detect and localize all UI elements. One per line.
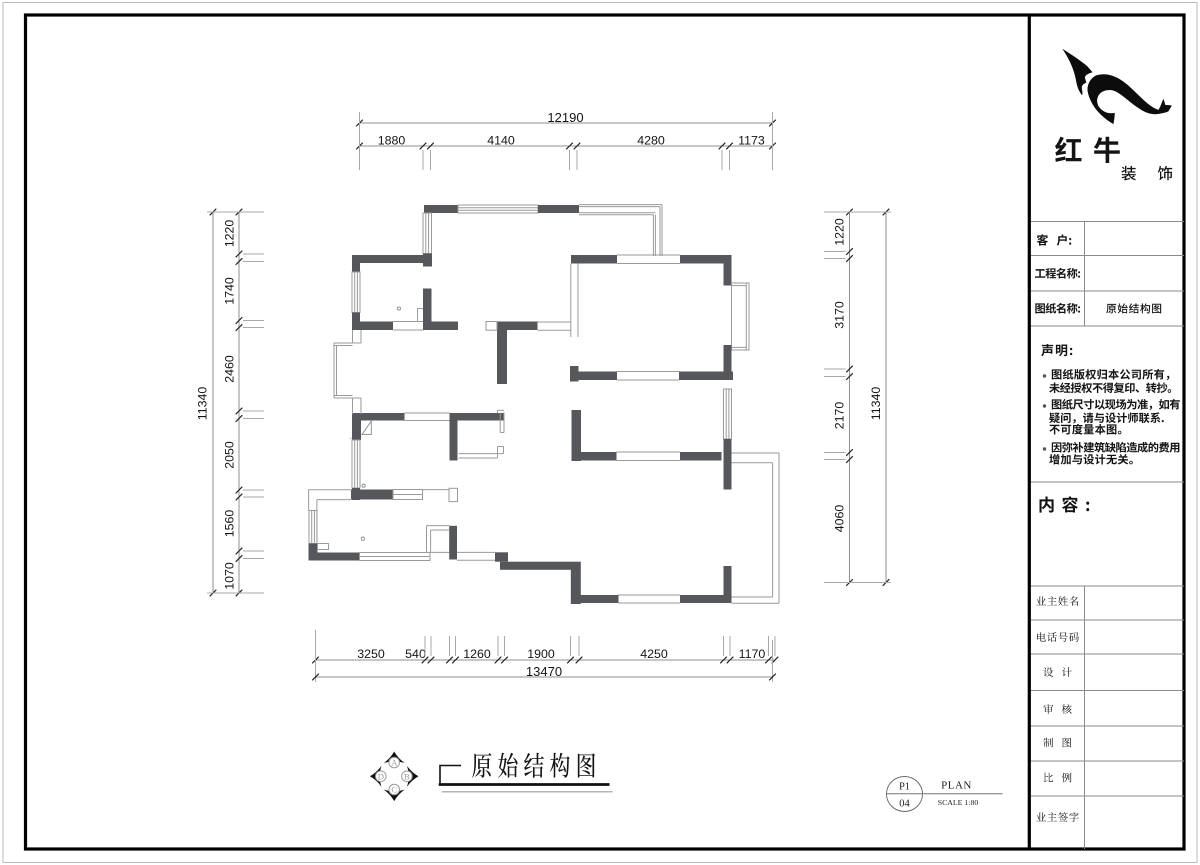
svg-text:D: D (378, 771, 384, 781)
svg-text:1220: 1220 (223, 220, 237, 248)
svg-text:1070: 1070 (223, 562, 237, 590)
svg-text:3170: 3170 (833, 301, 847, 329)
svg-text:1560: 1560 (223, 510, 237, 538)
svg-text:1170: 1170 (739, 647, 766, 661)
svg-text:1260: 1260 (463, 647, 491, 661)
svg-text:2460: 2460 (223, 355, 237, 383)
svg-text:C: C (391, 785, 397, 795)
svg-text:12190: 12190 (547, 110, 583, 125)
svg-text:4060: 4060 (833, 505, 847, 533)
svg-text:13470: 13470 (526, 664, 562, 679)
svg-text:11340: 11340 (869, 387, 883, 421)
svg-text:1880: 1880 (378, 134, 406, 148)
svg-text:P1: P1 (899, 782, 910, 793)
svg-text:2050: 2050 (223, 441, 237, 469)
svg-text:540: 540 (405, 647, 426, 661)
svg-text:1900: 1900 (527, 647, 555, 661)
svg-text:11340: 11340 (196, 387, 210, 421)
svg-text:PLAN: PLAN (941, 780, 972, 792)
svg-text:4280: 4280 (637, 134, 665, 148)
svg-text:4250: 4250 (640, 647, 668, 661)
svg-text:1220: 1220 (833, 218, 847, 246)
svg-text:1740: 1740 (223, 277, 237, 305)
svg-text:2170: 2170 (833, 402, 847, 430)
svg-text:B: B (404, 771, 410, 781)
svg-text:4140: 4140 (487, 134, 515, 148)
svg-text:3250: 3250 (357, 647, 385, 661)
svg-text:SCALE 1:80: SCALE 1:80 (938, 798, 979, 807)
svg-text:A: A (391, 758, 398, 768)
svg-text:1173: 1173 (738, 134, 765, 148)
svg-text:04: 04 (899, 799, 910, 810)
